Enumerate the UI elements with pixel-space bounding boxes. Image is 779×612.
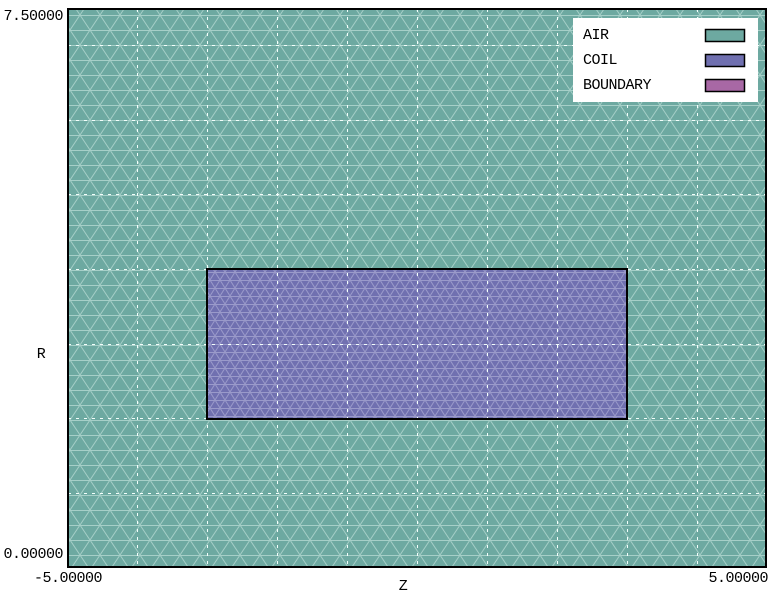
y-axis-title: R (28, 347, 54, 363)
mesh-plot-window: 7.50000 0.00000 -5.00000 5.00000 R Z AIR… (0, 0, 779, 612)
x-axis-max-tick: 5.00000 (698, 571, 768, 587)
legend-swatch-air (704, 28, 746, 43)
legend-label-air: AIR (583, 27, 609, 44)
x-axis-min-tick: -5.00000 (34, 571, 114, 587)
y-axis-min-tick: 0.00000 (0, 547, 63, 563)
legend-row-boundary: BOUNDARY (573, 73, 758, 98)
legend-label-boundary: BOUNDARY (583, 77, 651, 94)
y-axis-max-tick: 7.50000 (0, 9, 63, 25)
legend-row-air: AIR (573, 23, 758, 48)
legend-swatch-coil (704, 53, 746, 68)
x-axis-title: Z (391, 579, 415, 595)
legend: AIR COIL BOUNDARY (573, 18, 758, 102)
legend-label-coil: COIL (583, 52, 617, 69)
legend-swatch-boundary (704, 78, 746, 93)
legend-row-coil: COIL (573, 48, 758, 73)
